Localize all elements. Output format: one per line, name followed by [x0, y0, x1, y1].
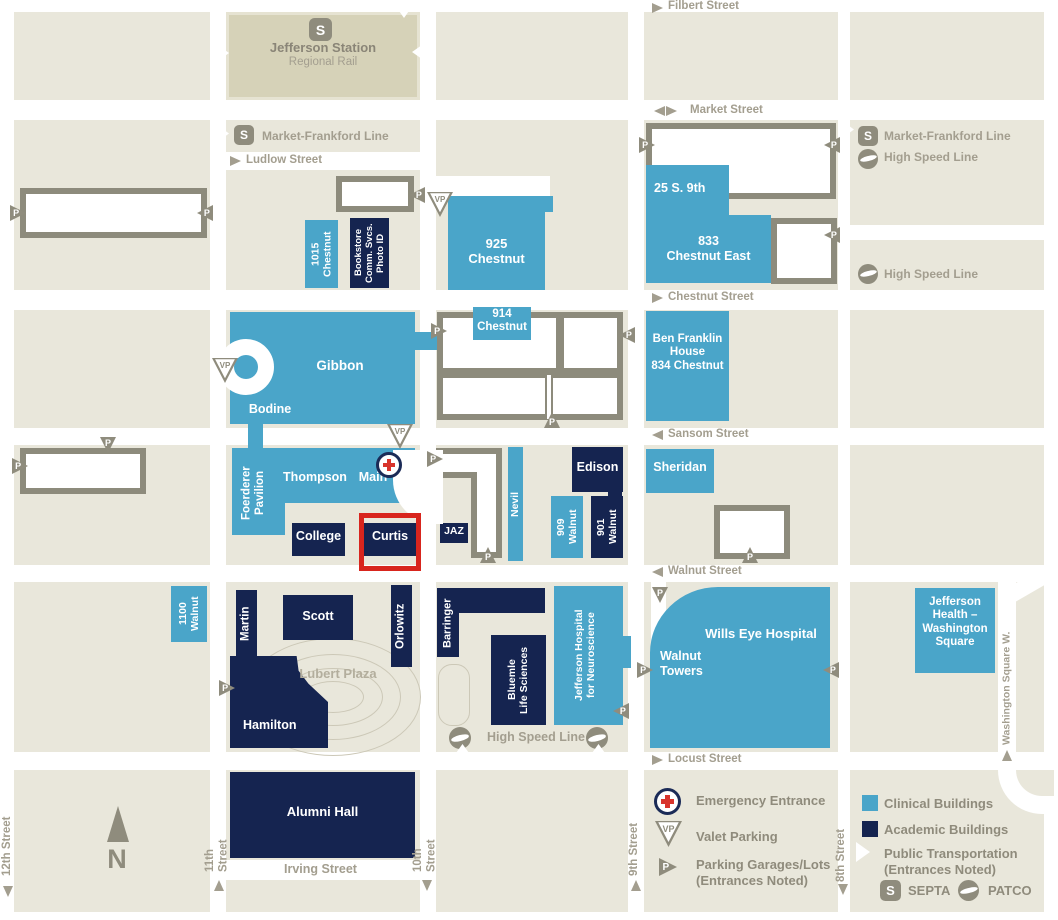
parking-lot [336, 176, 414, 212]
patco-icon [958, 880, 979, 901]
legend-valet-label: Valet Parking [696, 829, 778, 845]
map-road [545, 375, 553, 419]
septa-icon: S [234, 125, 254, 145]
p-glyph: P [549, 417, 555, 427]
patco-icon [858, 149, 878, 169]
street-ludlow: Ludlow Street [246, 154, 322, 167]
bldg-thompson-label: Thompson [281, 470, 349, 485]
street-arrow-icon [422, 880, 432, 891]
p-glyph: P [13, 208, 19, 218]
legend-patco-label: PATCO [988, 883, 1032, 899]
bldg-jhn [623, 636, 631, 668]
transit-mfl-1: Market-Frankford Line [262, 130, 389, 144]
parking-lot [437, 372, 623, 420]
septa-icon: S [880, 880, 901, 901]
bldg-edison-label: Edison [572, 460, 623, 475]
vp-glyph: VP [427, 195, 453, 204]
bldg-wills-eye-label: Wills Eye Hospital [700, 626, 822, 641]
p-glyph: P [15, 461, 21, 471]
legend-clinical-label: Clinical Buildings [884, 796, 993, 812]
city-block [850, 240, 1044, 290]
street-9th: 9th Street [627, 820, 642, 878]
legend-parking-label: Parking Garages/Lots (Entrances Noted) [696, 857, 830, 890]
patco-swoosh [859, 269, 877, 278]
p-glyph: P [626, 330, 632, 340]
septa-glyph: S [886, 883, 895, 898]
bldg-scott-label: Scott [283, 609, 353, 624]
map-road [477, 454, 496, 552]
street-irving: Irving Street [284, 862, 357, 877]
septa-icon: S [309, 18, 332, 41]
vp-glyph: VP [387, 427, 413, 436]
street-sansom: Sansom Street [668, 428, 749, 441]
emergency-entrance-icon [376, 452, 402, 478]
city-block [14, 310, 210, 428]
street-locust: Locust Street [668, 753, 742, 766]
city-block [850, 310, 1044, 428]
p-glyph: P [430, 454, 436, 464]
street-walnut: Walnut Street [668, 565, 742, 578]
street-arrow-icon [652, 293, 663, 303]
area-lubert-plaza: Lubert Plaza [283, 666, 393, 681]
city-block [436, 770, 628, 912]
bldg-gibbon-label: Gibbon [280, 358, 400, 374]
bldg-bookstore-label: Bookstore Comm. Svcs. Photo ID [350, 218, 389, 288]
bldg-barringer-label: Barringer [435, 593, 461, 653]
street-arrow-icon [652, 567, 663, 577]
bldg-walnut-towers-label: Walnut Towers [660, 649, 722, 678]
parking-lot [714, 505, 790, 559]
street-8th: 8th Street [834, 826, 849, 884]
legend-academic-label: Academic Buildings [884, 822, 1008, 838]
bldg-orlowitz-label: Orlowitz [388, 593, 414, 659]
valet-parking-icon: VP [655, 821, 682, 847]
street-12th: 12th Street [0, 804, 15, 888]
city-block [14, 12, 210, 100]
septa-glyph: S [240, 128, 248, 142]
vp-glyph: VP [212, 361, 238, 370]
bldg-925-chestnut-label: 925 Chestnut [448, 236, 545, 266]
street-arrow-icon [230, 156, 241, 166]
bldg-1100-walnut-label: 1100 Walnut [171, 589, 207, 639]
bldg-909-walnut-label: 909 Walnut [551, 499, 583, 555]
p-glyph: P [640, 665, 646, 675]
bldg-833-chestnut-east-label: 833 Chestnut East [646, 234, 771, 263]
curtis-highlight-box [359, 513, 421, 571]
patco-swoosh [450, 733, 469, 743]
p-glyph: P [830, 665, 836, 675]
legend-emergency-label: Emergency Entrance [696, 793, 825, 809]
legend-academic-swatch [862, 821, 878, 837]
bldg-25-s-9th-label: 25 S. 9th [654, 181, 724, 196]
bldg-901-walnut-label: 901 Walnut [591, 499, 623, 555]
bldg-jefferson-health-label: Jefferson Health – Washington Square [915, 596, 995, 649]
compass-n-label: N [102, 844, 132, 875]
station-type: Regional Rail [243, 56, 403, 69]
bldg-foerderer-label: Foerderer Pavilion [238, 456, 270, 530]
transit-mfl-2: Market-Frankford Line [884, 130, 1011, 144]
patco-icon [858, 264, 878, 284]
p-glyph: P [222, 683, 228, 693]
bldg-wills-eye-walnut-towers [718, 587, 830, 653]
street-washington-sq: Washington Square W. [998, 626, 1015, 750]
p-glyph: P [831, 140, 837, 150]
legend-transport-label: Public Transportation (Entrances Noted) [884, 846, 1018, 879]
street-market: Market Street [690, 104, 763, 117]
emergency-entrance-icon [654, 788, 681, 815]
city-block [850, 445, 1044, 565]
legend-septa-label: SEPTA [908, 883, 950, 899]
city-block [436, 12, 628, 100]
valet-parking-icon: VP [427, 192, 453, 217]
p-glyph: P [105, 438, 111, 448]
transit-hsl-2: High Speed Line [884, 268, 978, 282]
street-arrow-icon [654, 106, 665, 116]
p-glyph: P [831, 230, 837, 240]
map-road [438, 664, 470, 726]
patco-icon [586, 727, 608, 749]
p-glyph: P [204, 208, 210, 218]
bldg-925-chestnut [448, 196, 553, 212]
street-arrow-icon [631, 880, 641, 891]
patco-swoosh [959, 886, 977, 896]
bldg-jhn-label: Jefferson Hospital for Neuroscience [562, 597, 608, 714]
vp-glyph: VP [655, 824, 682, 834]
legend-clinical-swatch [862, 795, 878, 811]
street-chestnut: Chestnut Street [668, 291, 754, 304]
patco-icon [449, 727, 471, 749]
bldg-alumni-hall-label: Alumni Hall [230, 804, 415, 819]
bldg-hamilton-label: Hamilton [243, 718, 315, 733]
map-road [556, 316, 564, 372]
septa-icon: S [858, 126, 878, 146]
p-glyph: P [642, 140, 648, 150]
em-cross-v [387, 459, 391, 471]
bldg-sheridan-label: Sheridan [646, 460, 714, 475]
parking-lot [20, 448, 146, 494]
p-glyph: P [416, 190, 422, 200]
street-arrow-icon [652, 755, 663, 765]
bldg-ben-franklin-label: Ben Franklin House 834 Chestnut [646, 333, 729, 373]
p-glyph: P [747, 552, 753, 562]
p-glyph: P [663, 862, 670, 873]
street-arrow-icon [3, 886, 13, 897]
transit-hsl-3: High Speed Line [487, 730, 585, 745]
bldg-1015-chestnut-label: 1015 Chestnut [305, 220, 338, 288]
street-arrow-icon [838, 884, 848, 895]
street-11th: 11th Street [210, 814, 225, 872]
p-glyph: P [434, 326, 440, 336]
bldg-nevil-label: Nevil [505, 477, 525, 532]
street-arrow-icon [214, 880, 224, 891]
p-glyph: P [485, 552, 491, 562]
bldg-jaz-label: JAZ [440, 525, 468, 537]
street-filbert: Filbert Street [668, 0, 739, 13]
p-glyph: P [620, 706, 626, 716]
street-arrow-icon [666, 106, 677, 116]
valet-parking-icon: VP [212, 358, 238, 383]
bldg-bodine-label: Bodine [240, 402, 300, 417]
patco-swoosh [587, 733, 606, 743]
parking-lot [20, 188, 207, 238]
city-block [644, 12, 838, 100]
septa-glyph: S [316, 22, 325, 38]
bldg-college-label: College [292, 529, 345, 544]
parking-lot [771, 218, 837, 284]
valet-parking-icon: VP [387, 424, 413, 449]
transit-hsl-1: High Speed Line [884, 151, 978, 165]
septa-glyph: S [864, 129, 872, 143]
street-10th: 10th Street [418, 814, 433, 872]
street-arrow-icon [652, 430, 663, 440]
p-glyph: P [657, 588, 663, 598]
patco-swoosh [859, 154, 877, 163]
bldg-914-chestnut-label: 914 Chestnut [473, 308, 531, 335]
map-road [436, 176, 550, 196]
station-name: Jefferson Station [243, 40, 403, 55]
city-block [850, 12, 1044, 100]
bldg-bluemle-label: Bluemle Life Sciences [493, 641, 543, 719]
em-cross-v [665, 795, 670, 808]
bldg-martin-label: Martin [233, 597, 259, 651]
campus-map: Jefferson StationRegional RailMarket-Fra… [0, 0, 1058, 920]
